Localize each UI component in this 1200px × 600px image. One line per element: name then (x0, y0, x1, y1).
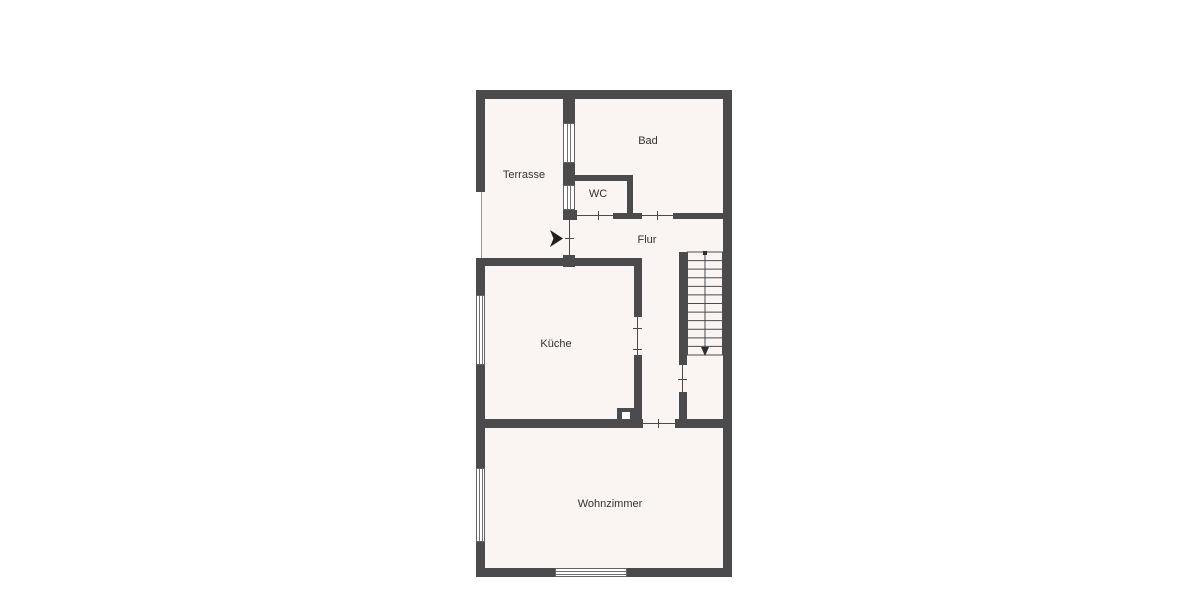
door-wohnzimmer-tick (658, 419, 659, 428)
wall-kueche-right-upper (634, 266, 642, 317)
room-label-wc: WC (589, 188, 607, 200)
door-entrance-tick (565, 238, 574, 239)
door-stairs-tick (678, 379, 687, 380)
door-kueche-tick-2 (633, 349, 642, 350)
wall-outer-top (476, 90, 732, 99)
window-pane (479, 469, 483, 541)
stairs-walkline-start-dot (703, 251, 707, 255)
room-label-bad: Bad (638, 135, 658, 147)
door-wc-line (577, 215, 613, 216)
window-wohnzimmer-bottom-icon (555, 568, 627, 577)
door-bad-tick (657, 211, 658, 220)
wall-stairs-left-lower (679, 392, 687, 428)
wall-outer-right (723, 90, 732, 577)
staircase (687, 250, 723, 362)
window-pane (479, 296, 483, 364)
wall-wc-top (575, 175, 633, 181)
room-label-kueche: Küche (540, 338, 571, 350)
door-wc-tick (598, 211, 599, 220)
wall-kueche-top (478, 258, 642, 266)
floor-plan: Terrasse Bad WC Flur Küche Wohnzimmer (476, 90, 732, 577)
window-wohnzimmer-left-icon (476, 468, 485, 542)
wall-terrasse-end-block (563, 210, 577, 220)
wall-terrasse-bad-mid (563, 163, 575, 185)
room-label-flur: Flur (638, 234, 657, 246)
room-label-wohnzimmer: Wohnzimmer (578, 498, 643, 510)
window-bad-icon (563, 123, 575, 163)
wall-flur-right (673, 213, 732, 219)
wall-outer-left-terrace (476, 99, 485, 192)
door-entrance-line (569, 220, 570, 258)
wall-terrasse-bad-upper (563, 99, 575, 123)
window-wc-icon (563, 185, 575, 210)
window-pane (567, 186, 571, 209)
wall-stairs-left-upper (679, 252, 687, 365)
wall-wohnzimmer-top-left (478, 419, 643, 428)
terrace-edge-line (481, 192, 482, 258)
room-label-terrasse: Terrasse (503, 169, 545, 181)
window-kueche-icon (476, 295, 485, 365)
door-wohnzimmer-line (643, 423, 675, 424)
wall-flur-mid (613, 213, 642, 219)
wall-kueche-right-lower (634, 355, 642, 421)
window-pane (556, 571, 626, 575)
entrance-arrow-icon (550, 230, 563, 247)
window-pane (567, 124, 571, 162)
door-kueche-tick-1 (633, 328, 642, 329)
